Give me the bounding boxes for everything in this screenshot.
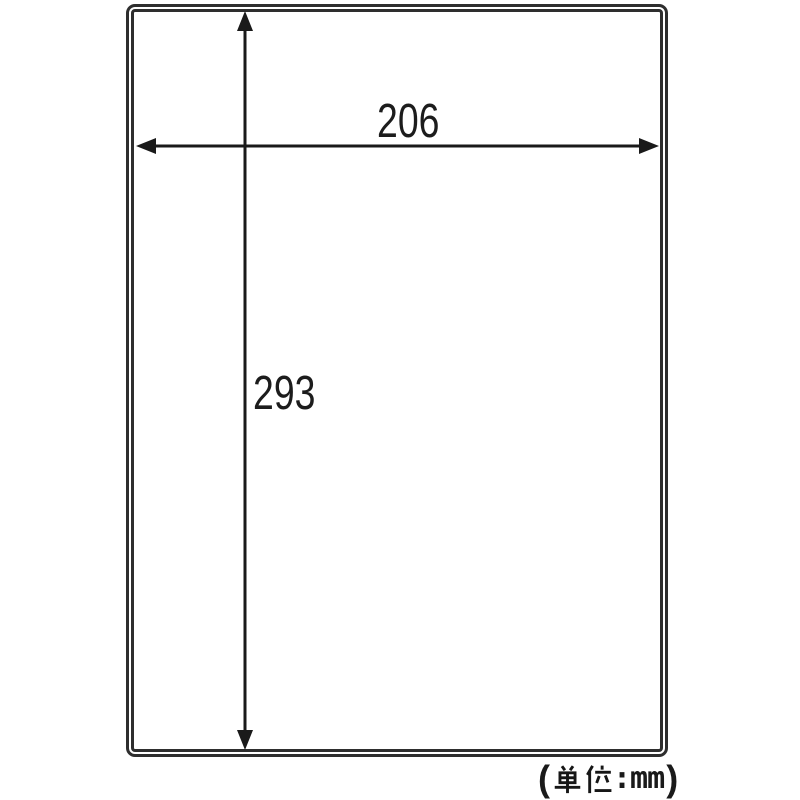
height-dimension-label: 293 bbox=[253, 370, 315, 418]
unit-kanji-label bbox=[553, 765, 612, 794]
unit-note-close-paren: ) bbox=[666, 761, 678, 797]
height-dimension-arrow bbox=[237, 11, 253, 750]
arrowhead-up-icon bbox=[237, 11, 253, 31]
unit-note-mm: :mm bbox=[613, 764, 664, 794]
dimension-diagram: 206 293 ( :mm bbox=[0, 0, 800, 800]
width-dimension-label: 206 bbox=[377, 98, 439, 146]
kanji-i-icon bbox=[583, 765, 612, 794]
arrowhead-left-icon bbox=[136, 138, 156, 154]
unit-note-open-paren: ( bbox=[538, 761, 550, 797]
kanji-tan-icon bbox=[553, 765, 582, 794]
unit-note: ( :mm ) bbox=[538, 760, 678, 798]
arrowhead-right-icon bbox=[639, 138, 659, 154]
arrowhead-down-icon bbox=[237, 730, 253, 750]
